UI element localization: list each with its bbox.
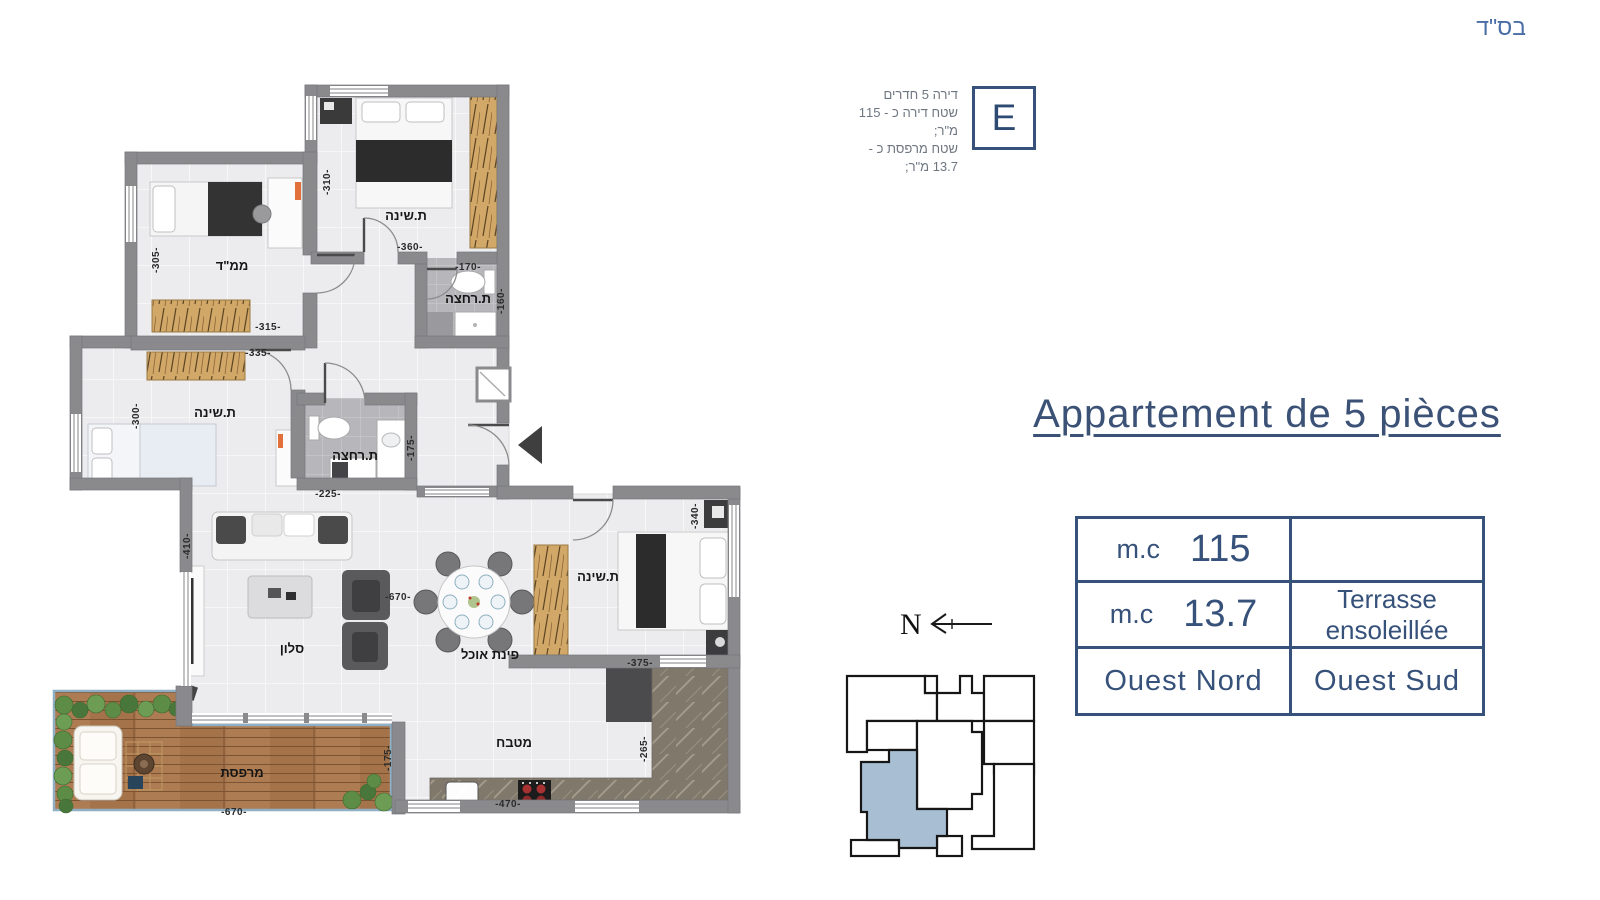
entrance-arrow-icon	[518, 426, 542, 464]
spec-area-main-value: 115	[1190, 528, 1251, 571]
dim-265: -265-	[639, 736, 650, 762]
dim-360: -360-	[397, 242, 423, 253]
floorplan-svg: ת.שינה ממ"ד ת.רחצה ת.שינה ת.רחצה סלון פי…	[0, 0, 800, 870]
dim-305: -305-	[151, 247, 162, 273]
dim-470: -470-	[495, 799, 521, 810]
dim-410: -410-	[182, 533, 193, 559]
dim-315: -315-	[255, 322, 281, 333]
room-label-kitchen: מטבח	[496, 735, 532, 750]
room-label-bedroom-right: ת.שינה	[577, 569, 619, 584]
dim-670-salon: -670-	[385, 592, 411, 603]
room-label-salon: סלון	[280, 641, 304, 656]
dim-160: -160-	[496, 288, 507, 314]
room-label-bath-mid: ת.רחצה	[332, 448, 378, 463]
terrasse-line-2: ensoleillée	[1326, 615, 1449, 646]
orientation-left: Ouest Nord	[1104, 665, 1262, 698]
room-label-terrace: מרפסת	[220, 765, 263, 780]
unit-info-line-3: שטח מרפסת כ - 13.7 מ"ר;	[846, 140, 958, 176]
unit-info-card: דירה 5 חדרים שטח דירה כ - 115 מ"ר; שטח מ…	[846, 86, 1036, 176]
dim-175-bath: -175-	[406, 435, 417, 461]
north-label: N	[900, 608, 922, 641]
dim-670-terrace: -670-	[221, 807, 247, 818]
dim-170: -170-	[455, 262, 481, 273]
dim-225: -225-	[315, 489, 341, 500]
north-arrow: N	[890, 600, 1000, 648]
orientation-right: Ouest Sud	[1314, 665, 1460, 698]
room-label-mamad: ממ"ד	[216, 258, 249, 273]
dim-335: -335-	[245, 348, 271, 359]
spec-cell-empty	[1292, 519, 1482, 583]
besed-text: בס"ד	[1440, 14, 1526, 41]
room-label-bath-top: ת.רחצה	[445, 291, 491, 306]
unit-letter-box: E	[972, 86, 1036, 150]
north-arrow-icon	[932, 614, 992, 633]
spec-cell-orientation-left: Ouest Nord	[1078, 649, 1292, 713]
room-label-bedroom-top: ת.שינה	[385, 208, 427, 223]
spec-table: m.c 115 m.c 13.7 Terrasse ensoleillée Ou…	[1075, 516, 1485, 716]
unit-info-line-1: דירה 5 חדרים	[846, 86, 958, 104]
dim-310: -310-	[322, 169, 333, 195]
room-label-bedroom-left: ת.שינה	[194, 405, 236, 420]
dim-175-terrace: -175-	[383, 745, 394, 771]
shaft	[477, 368, 510, 401]
unit-info-line-2: שטח דירה כ - 115 מ"ר;	[846, 104, 958, 140]
dim-300: -300-	[131, 403, 142, 429]
spec-area-terrace-value: 13.7	[1183, 593, 1257, 636]
page-title: Appartement de 5 pièces	[1012, 392, 1522, 437]
spec-cell-area-main: m.c 115	[1078, 519, 1292, 583]
spec-cell-terrasse: Terrasse ensoleillée	[1292, 583, 1482, 649]
room-label-dining: פינת אוכל	[461, 647, 519, 662]
spec-cell-area-terrace: m.c 13.7	[1078, 583, 1292, 649]
dim-340: -340-	[690, 503, 701, 529]
terrasse-line-1: Terrasse	[1326, 584, 1449, 615]
floorplan-sheet: ת.שינה ממ"ד ת.רחצה ת.שינה ת.רחצה סלון פי…	[0, 0, 1600, 900]
spec-cell-orientation-right: Ouest Sud	[1292, 649, 1482, 713]
spec-area-terrace-unit: m.c	[1110, 599, 1154, 630]
unit-info-lines: דירה 5 חדרים שטח דירה כ - 115 מ"ר; שטח מ…	[846, 86, 958, 176]
spec-area-main-unit: m.c	[1116, 534, 1160, 565]
key-plan	[822, 644, 1038, 858]
dim-375: -375-	[627, 658, 653, 669]
